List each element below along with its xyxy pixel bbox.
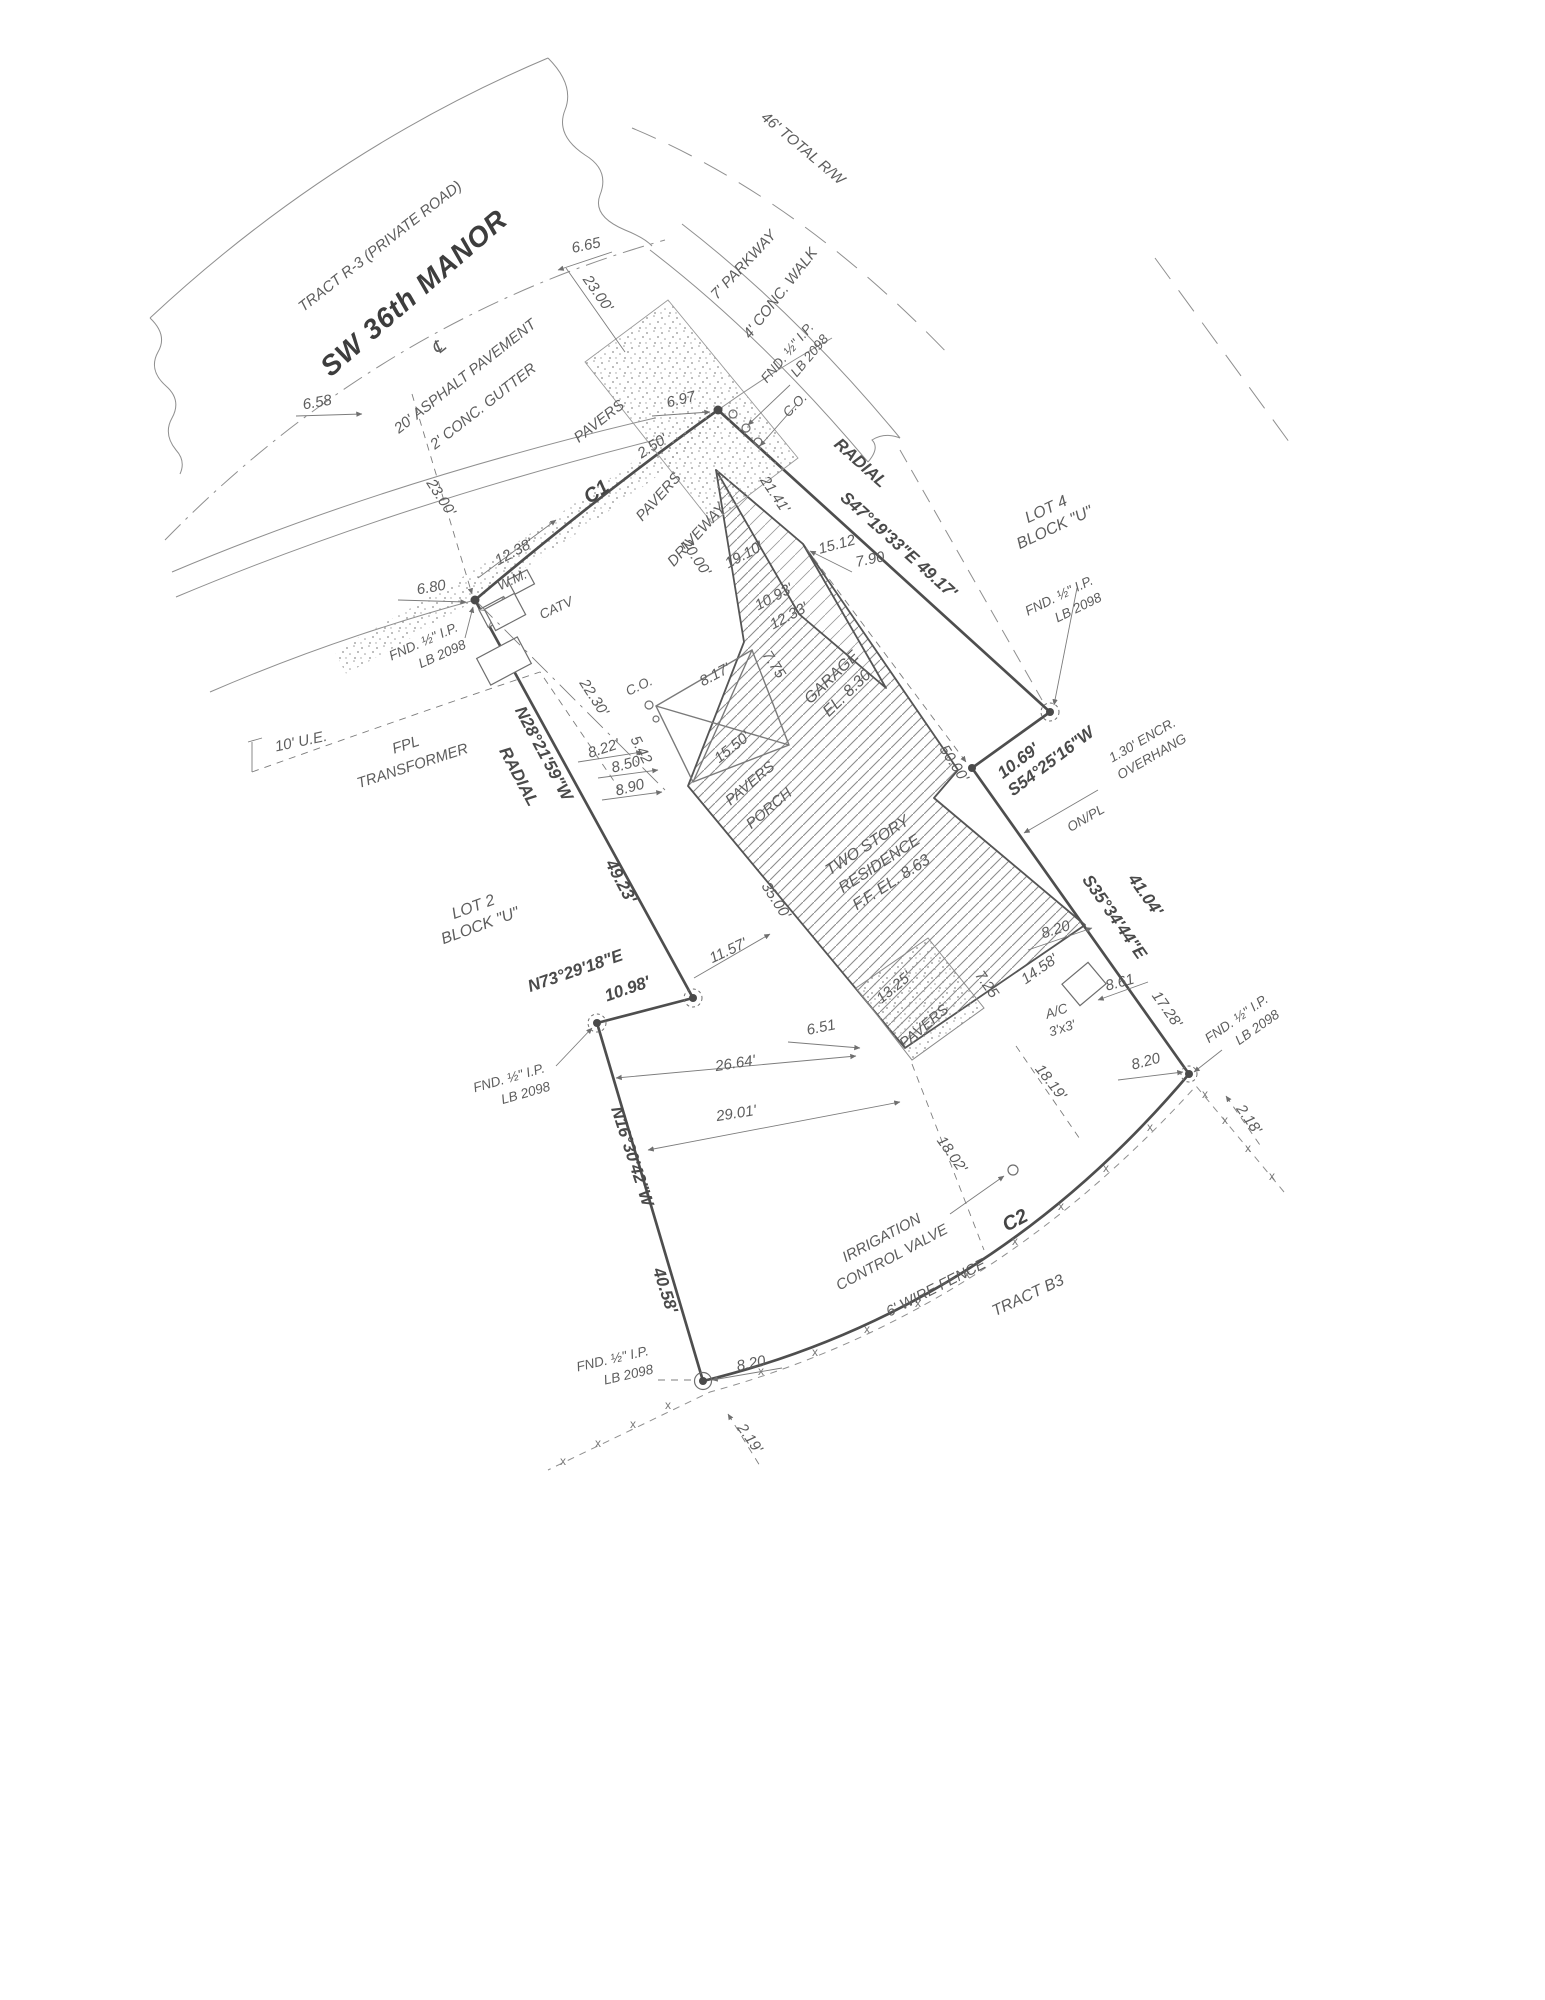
adjacent-lot-dashed-line — [1155, 258, 1295, 450]
fence-x-mark: x — [1245, 1141, 1251, 1155]
dim-22-30: 22.30' — [575, 675, 612, 720]
ue-label: 10' U.E. — [273, 728, 328, 756]
onpl-label: ON/PL — [1064, 801, 1107, 834]
total-rw-label: 46' TOTAL R/W — [758, 109, 850, 190]
dim-8-20-b: 8.20 — [1130, 1049, 1163, 1073]
dim-2-18: 2.18' — [1232, 1101, 1266, 1139]
fence-x-mark: x — [595, 1436, 601, 1450]
ac-label: A/C 3'x3' — [1041, 1000, 1077, 1040]
catv-label: CATV — [537, 593, 577, 622]
dim-18-02: 18.02' — [933, 1133, 971, 1177]
leader-8-20-b — [1118, 1072, 1183, 1080]
radial-s47-word: RADIAL — [830, 434, 890, 491]
dim-8-90: 8.90 — [614, 775, 647, 799]
dim-6-58: 6.58 — [301, 392, 333, 414]
bearing-n16: N16°30'42"W — [607, 1104, 658, 1211]
fnd-label-c: FND. ½" I.P. LB 2098 — [1023, 572, 1105, 635]
co-circle-mid2 — [653, 716, 659, 722]
walk-end-squiggle — [868, 435, 900, 462]
fnd-label-f: FND. ½" I.P. LB 2098 — [575, 1343, 655, 1393]
leader-6-51 — [788, 1042, 860, 1048]
centerline-symbol: ℄ — [428, 336, 450, 359]
encroach-label: 1.30' ENCR. OVERHANG — [1105, 714, 1189, 782]
fence-x-mark: x — [812, 1345, 818, 1359]
tract-b3-label: TRACT B3 — [989, 1272, 1066, 1320]
fnd-label-b: FND. ½" I.P. LB 2098 — [758, 319, 832, 398]
dim-29-01: 29.01' — [714, 1102, 759, 1125]
dim-26-64: 26.64' — [713, 1052, 758, 1075]
dim-2-19: 2.19' — [733, 1420, 767, 1458]
tract-r3-label: TRACT R-3 (PRIVATE ROAD) — [295, 177, 465, 315]
road-left-break-squiggle — [150, 318, 182, 474]
fence-x-mark: x — [630, 1417, 636, 1431]
fnd-label-e: FND. ½" I.P. LB 2098 — [1202, 991, 1282, 1062]
fence-x-mark: x — [560, 1454, 566, 1468]
curve-c2-label: C2 — [999, 1205, 1032, 1236]
dim-7-90: 7.90 — [854, 548, 887, 571]
fence-x-mark: x — [1222, 1113, 1228, 1127]
ue-bracket — [248, 738, 262, 772]
fence-x-mark: x — [1012, 1234, 1018, 1248]
dim-6-65: 6.65 — [570, 234, 603, 257]
irrigation-valve-circle — [1008, 1165, 1018, 1175]
fence-x-mark: x — [1202, 1087, 1208, 1101]
fence-x-mark: x — [1058, 1199, 1064, 1213]
bearing-n28-length: 49.23' — [601, 856, 641, 908]
leader-fnd-e — [1194, 1050, 1222, 1072]
dim-18-19: 18.19' — [1031, 1061, 1070, 1104]
dim-6-51: 6.51 — [805, 1016, 837, 1039]
fpl-line1: FPL — [390, 733, 421, 758]
lot2-label: LOT 2 BLOCK "U" — [432, 885, 523, 948]
gutter-label: 2' CONC. GUTTER — [426, 360, 539, 454]
co-label-mid: C.O. — [623, 673, 655, 698]
road-pavers-label: PAVERS — [571, 397, 628, 447]
road-right-break-squiggle — [548, 58, 652, 246]
corner-f-dot — [699, 1377, 707, 1385]
leader-6-65 — [558, 252, 612, 270]
survey-page: xxxxxxxxxxxxxxxxx — [0, 0, 1545, 2000]
leader-6-58 — [296, 414, 362, 416]
fnd-label-g: FND. ½" I.P. LB 2098 — [471, 1060, 552, 1113]
fence-x-mark: x — [1147, 1120, 1153, 1134]
dim-11-57: 11.57' — [707, 934, 751, 966]
corner-a-dot — [471, 596, 480, 605]
fence-x-mark: x — [864, 1322, 870, 1336]
dim-23-00-left-text: 23.00' — [422, 475, 459, 520]
co-label-top: C.O. — [780, 390, 810, 420]
fence-x-mark: x — [665, 1398, 671, 1412]
leader-fnd-a — [465, 607, 473, 638]
corner-e-dot — [1185, 1070, 1193, 1078]
corner-g-dot — [593, 1019, 601, 1027]
fence-x-mark: x — [1103, 1161, 1109, 1175]
fpl-label: FPL TRANSFORMER — [348, 719, 470, 792]
dim-15-12: 15.12 — [817, 531, 858, 557]
bearing-s35-length: 41.04' — [1124, 869, 1167, 920]
leader-fnd-g — [556, 1028, 592, 1066]
lot4-label: LOT 4 BLOCK "U" — [1006, 484, 1097, 553]
leader-icv — [950, 1176, 1004, 1214]
plat-drawing: xxxxxxxxxxxxxxxxx — [0, 0, 1545, 2000]
co-circle-mid1 — [645, 701, 653, 709]
bearing-n73-length: 10.98' — [602, 972, 653, 1005]
parkway-label: 7' PARKWAY — [708, 226, 781, 303]
fence-x-mark: x — [1269, 1169, 1275, 1183]
corner-b-dot — [714, 406, 723, 415]
fence-label: 6' WIRE FENCE — [883, 1255, 989, 1320]
corner-h-dot — [689, 994, 697, 1002]
dim-29-01-line — [648, 1102, 900, 1150]
corner-c-dot — [1046, 708, 1054, 716]
